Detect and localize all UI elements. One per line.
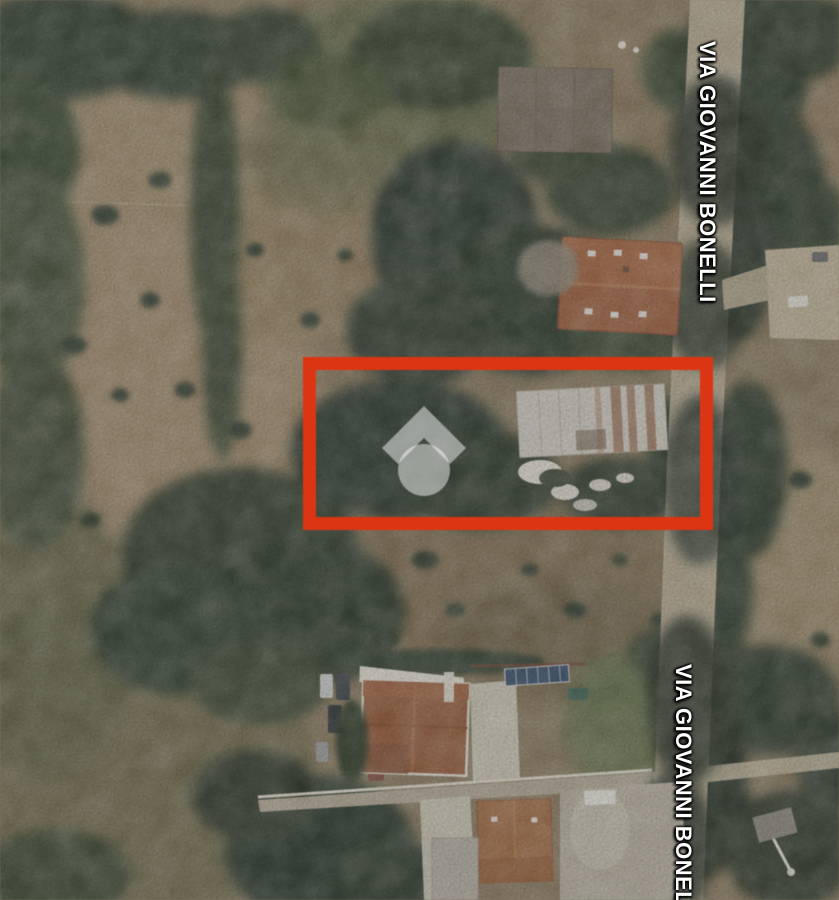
street-label: VIA GIOVANNI BONELLI: [670, 664, 696, 900]
satellite-map-image: VIA GIOVANNI BONELLI VIA GIOVANNI BONELL…: [0, 0, 839, 900]
street-label: VIA GIOVANNI BONELLI: [694, 41, 720, 303]
